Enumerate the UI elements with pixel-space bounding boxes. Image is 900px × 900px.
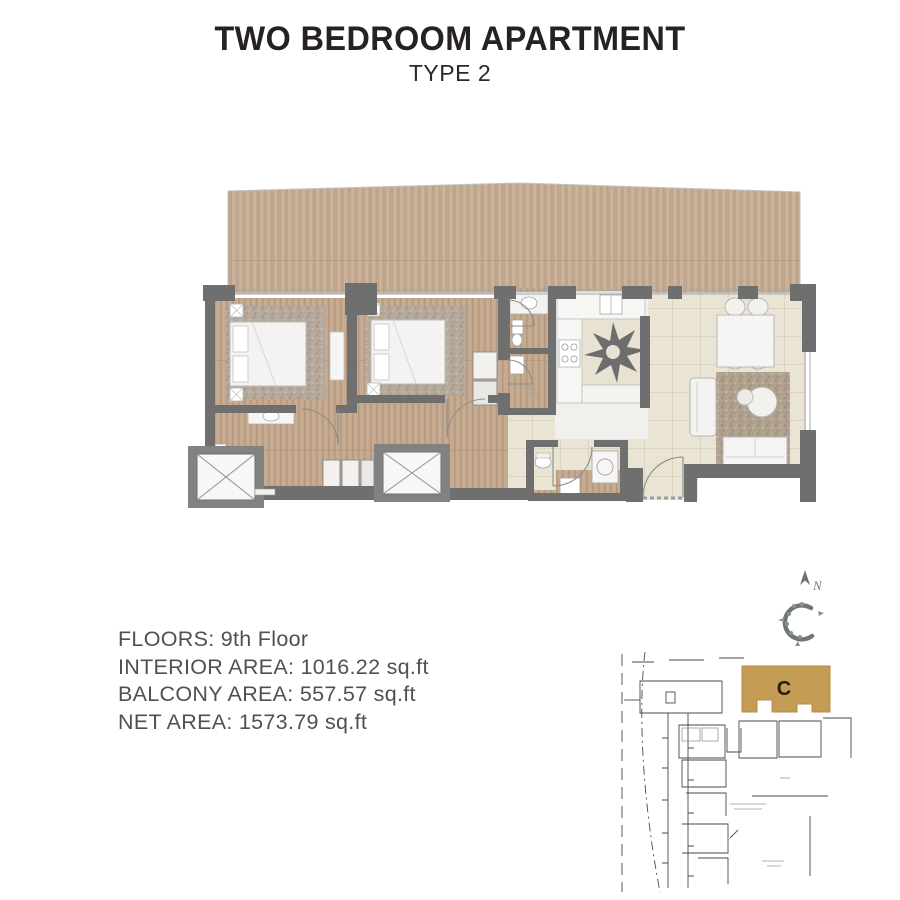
door-mat [255, 489, 275, 495]
dresser [330, 332, 344, 380]
pillow [374, 324, 389, 350]
compass-rose-icon [778, 602, 824, 646]
toilet-icon [512, 320, 523, 334]
ceiling-light-icon [230, 304, 243, 317]
highlighted-building: C [742, 666, 830, 712]
balcony-area-line: BALCONY AREA: 557.57 sq.ft [118, 681, 429, 709]
compass: N [778, 562, 848, 662]
area-details: FLOORS: 9th Floor INTERIOR AREA: 1016.22… [118, 626, 429, 736]
street-label-marks [762, 861, 784, 866]
net-area-line: NET AREA: 1573.79 sq.ft [118, 709, 429, 737]
pillow [233, 326, 248, 352]
road-centerline [642, 652, 660, 892]
ceiling-light-icon [367, 383, 380, 396]
north-arrow-icon: N [800, 570, 823, 593]
kitchen [557, 292, 646, 403]
corridor-wardrobes [323, 460, 374, 489]
closet [473, 352, 497, 379]
pillow [374, 354, 389, 380]
washing-machine-icon [592, 451, 618, 483]
dining-chair [748, 298, 768, 316]
site-map: C [612, 648, 900, 898]
dining-table [717, 315, 774, 367]
elevator-2 [374, 444, 450, 502]
floors-line: FLOORS: 9th Floor [118, 626, 429, 654]
kitchen-counter [582, 385, 646, 403]
side-table [737, 389, 753, 405]
building-label: C [777, 678, 791, 700]
armchair [690, 378, 716, 436]
north-label: N [812, 578, 823, 593]
page: TWO BEDROOM APARTMENT TYPE 2 [0, 0, 900, 900]
ceiling-light-icon [230, 388, 243, 401]
dining-chair [725, 298, 745, 316]
stove-icon [559, 340, 580, 367]
elevator-1 [188, 446, 264, 508]
toilet-icon [560, 478, 580, 494]
sink-icon [521, 297, 537, 309]
balcony [228, 183, 800, 293]
interior-area-line: INTERIOR AREA: 1016.22 sq.ft [118, 654, 429, 682]
street-label-marks [730, 804, 766, 809]
street-edge [632, 658, 744, 662]
pillow [233, 356, 248, 382]
